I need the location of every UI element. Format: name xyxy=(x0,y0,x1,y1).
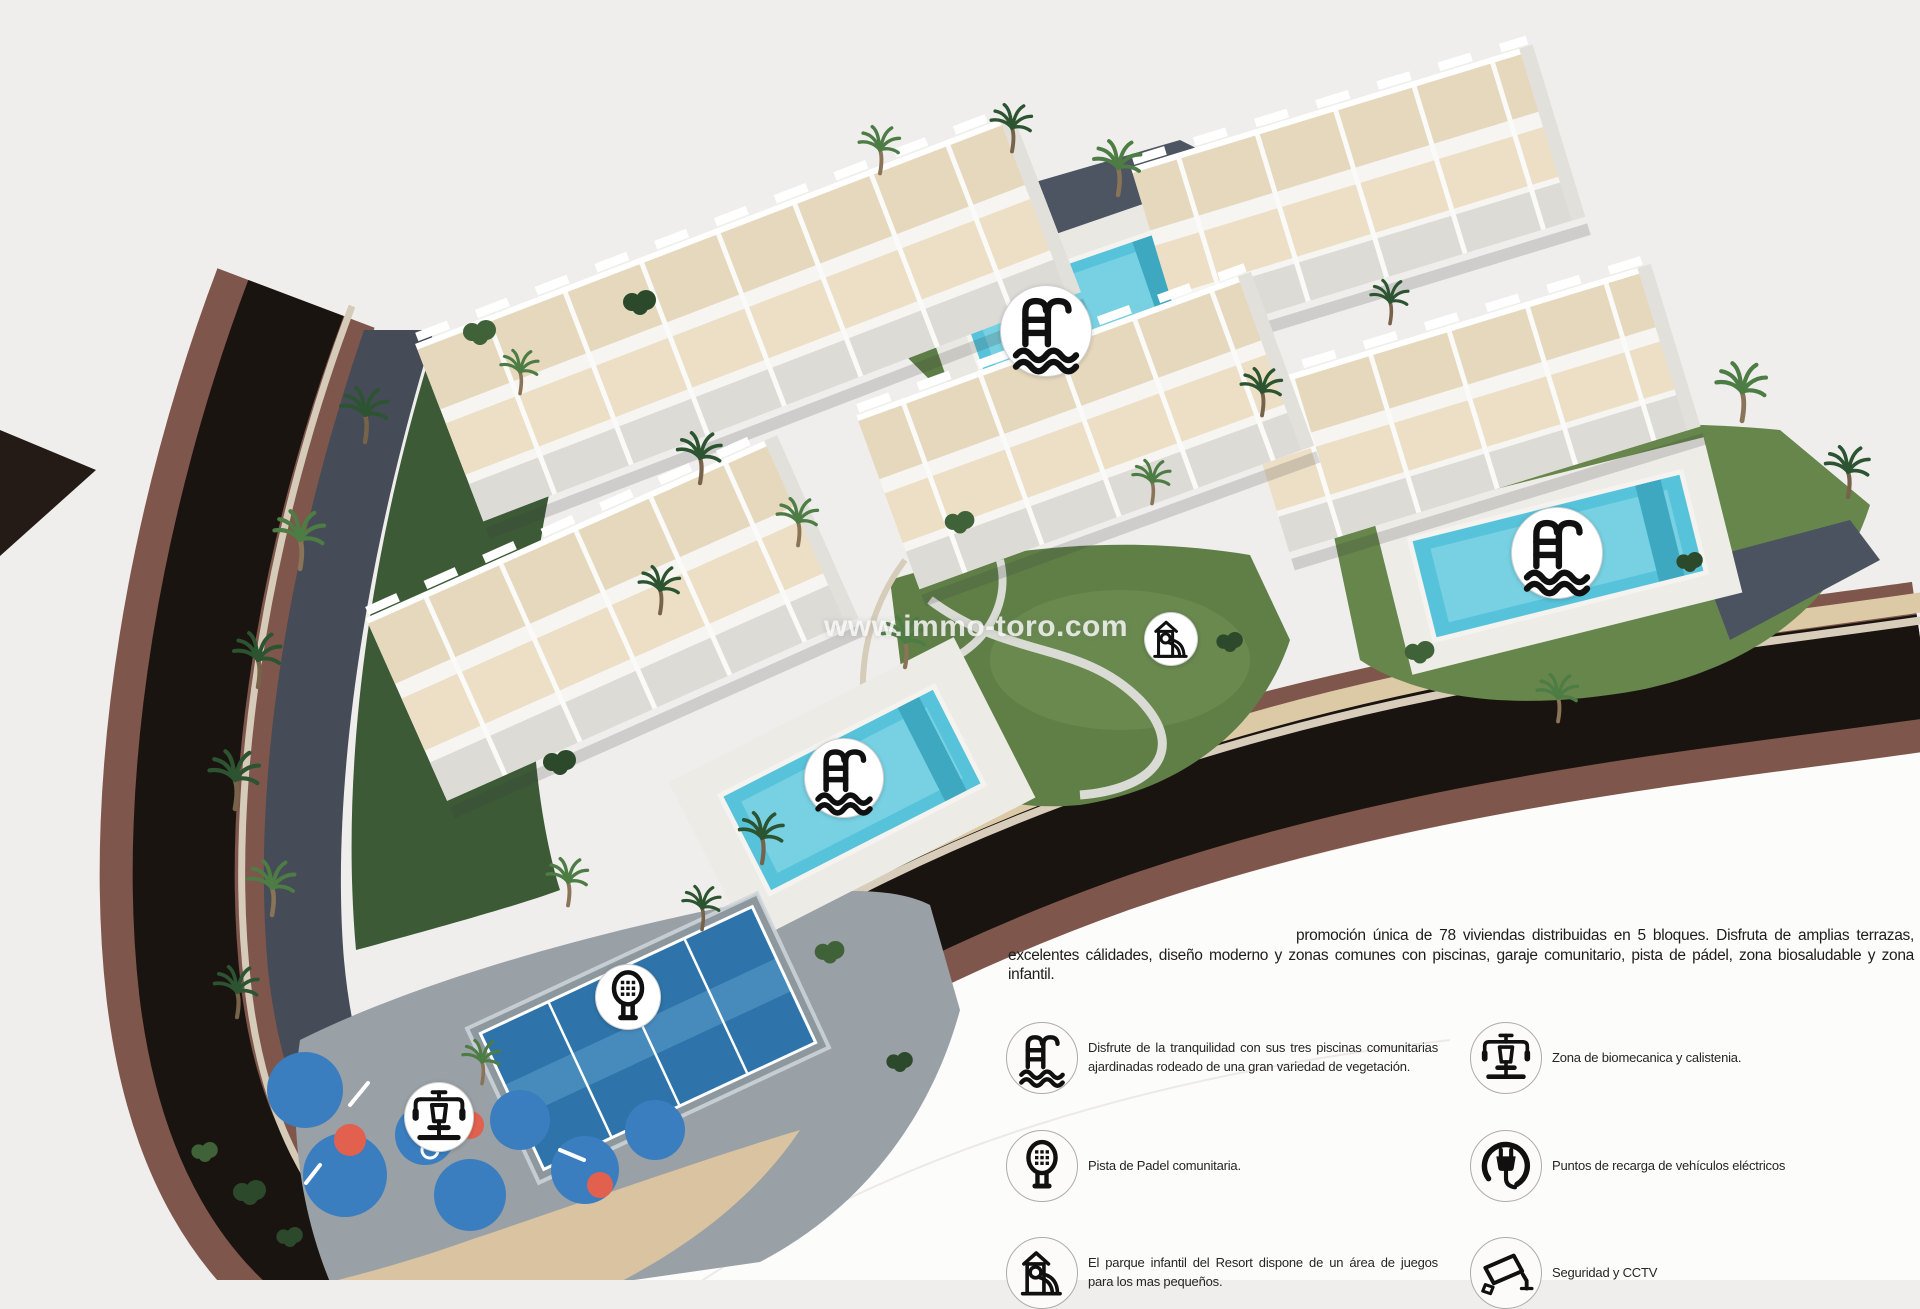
legend-text-biomechanics: Zona de biomecanica y calistenia. xyxy=(1552,1049,1912,1068)
map-marker-pool-north xyxy=(1000,285,1092,377)
padel-icon xyxy=(596,965,660,1029)
map-marker-playground xyxy=(1144,612,1198,666)
legend-text-ev-charger: Puntos de recarga de vehículos eléctrico… xyxy=(1552,1157,1912,1176)
map-marker-biomechanics xyxy=(404,1082,474,1152)
pool-icon xyxy=(1001,286,1091,376)
biomechanics-icon xyxy=(1470,1022,1542,1094)
padel-icon xyxy=(1006,1130,1078,1202)
legend-text-playground: El parque infantil del Resort dispone de… xyxy=(1088,1254,1438,1292)
pool-icon xyxy=(1006,1022,1078,1094)
legend-row-playground: El parque infantil del Resort dispone de… xyxy=(1006,1237,1438,1309)
legend-row-ev-charger: Puntos de recarga de vehículos eléctrico… xyxy=(1470,1130,1912,1202)
legend-row-pools: Disfrute de la tranquilidad con sus tres… xyxy=(1006,1022,1438,1094)
ev-charger-icon xyxy=(1470,1130,1542,1202)
map-marker-pool-east xyxy=(1511,507,1603,599)
legend-row-cctv: Seguridad y CCTV xyxy=(1470,1237,1912,1309)
pool-icon xyxy=(1512,508,1602,598)
map-marker-padel xyxy=(595,964,661,1030)
legend-row-biomechanics: Zona de biomecanica y calistenia. xyxy=(1470,1022,1912,1094)
watermark: www.immo-toro.com xyxy=(824,610,1128,644)
map-marker-pool-west xyxy=(804,738,884,818)
playground-icon xyxy=(1145,613,1197,665)
biomechanics-icon xyxy=(405,1083,473,1151)
legend-row-padel: Pista de Padel comunitaria. xyxy=(1006,1130,1438,1202)
playground-icon xyxy=(1006,1237,1078,1309)
cctv-icon xyxy=(1470,1237,1542,1309)
brochure-canvas: www.immo-toro.com promoción única de 78 … xyxy=(0,0,1920,1280)
legend-text-pools: Disfrute de la tranquilidad con sus tres… xyxy=(1088,1039,1438,1077)
legend-text-padel: Pista de Padel comunitaria. xyxy=(1088,1157,1438,1176)
promo-description: promoción única de 78 viviendas distribu… xyxy=(1008,926,1914,985)
pool-icon xyxy=(805,739,883,817)
